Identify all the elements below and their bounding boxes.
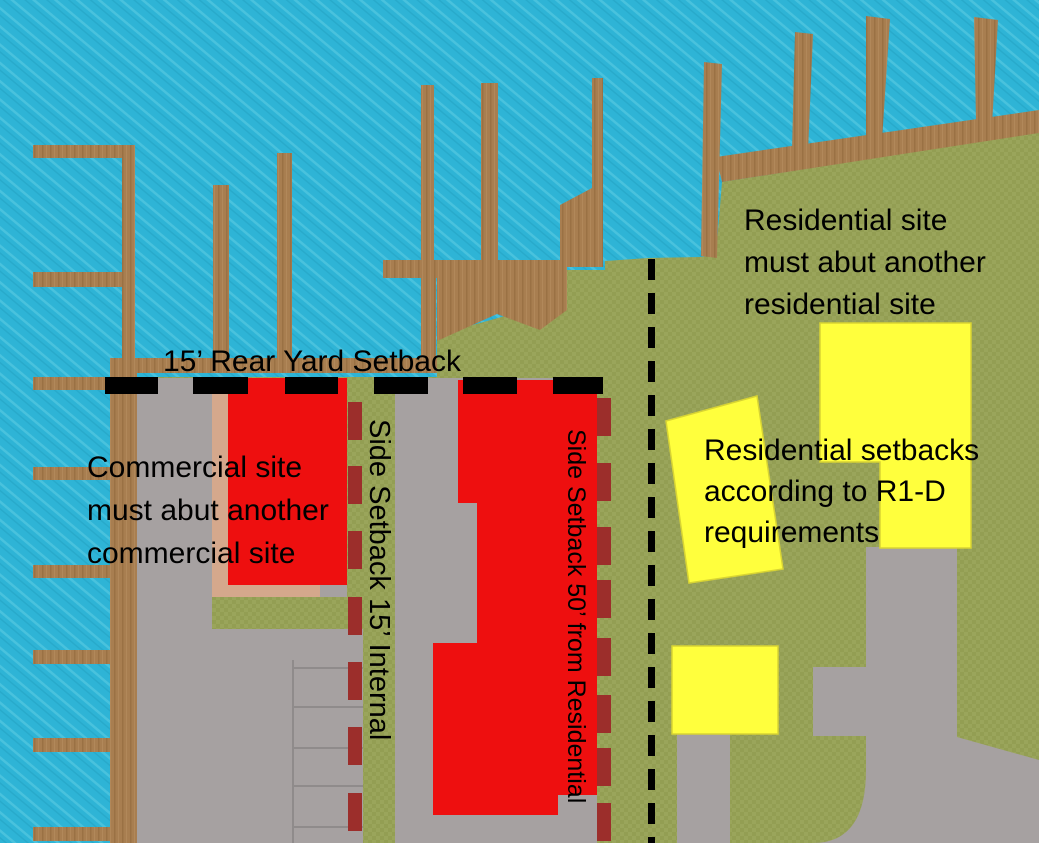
driveway: [677, 734, 730, 843]
commercial-rule-line: Commercial site: [87, 446, 329, 489]
side-setback-internal-label: Side Setback 15’ Internal: [359, 419, 399, 740]
rear-setback-label: 15’ Rear Yard Setback: [163, 341, 461, 382]
setback-dash: [553, 377, 603, 394]
slip-marker: [597, 748, 611, 786]
setback-dash: [105, 377, 158, 394]
commercial-rule-label: Commercial site must abut another commer…: [87, 446, 329, 575]
slip-marker: [597, 527, 611, 565]
dock-finger: [33, 738, 110, 752]
setback-dash: [463, 377, 517, 394]
residential-setbacks-label: Residential setbacks according to R1-D r…: [704, 430, 979, 553]
dock-finger: [33, 145, 135, 158]
dock-finger: [33, 827, 110, 841]
dock-finger: [33, 272, 122, 287]
residential-rule-line: residential site: [744, 284, 986, 326]
slip-marker: [597, 695, 611, 733]
slip-marker: [597, 803, 611, 841]
site-plan-canvas: [0, 0, 1039, 843]
dock-finger: [33, 377, 110, 390]
zoning-site-plan: 15’ Rear Yard Setback Commercial site mu…: [0, 0, 1039, 843]
slip-marker: [597, 398, 611, 436]
dock-pier: [277, 153, 292, 358]
commercial-rule-line: must abut another: [87, 489, 329, 532]
residential-building-3: [672, 646, 778, 734]
dock-spine: [122, 145, 135, 362]
lawn-patch: [212, 597, 360, 629]
residential-rule-line: must abut another: [744, 242, 986, 284]
marina-pier: [481, 83, 498, 278]
residential-rule-label: Residential site must abut another resid…: [744, 200, 986, 326]
residential-setbacks-line: Residential setbacks: [704, 430, 979, 471]
dock-finger: [33, 650, 110, 664]
marina-arm: [383, 260, 567, 278]
side-setback-residential-label: Side Setback 50’ from Residential: [559, 429, 594, 803]
slip-marker: [597, 638, 611, 676]
residential-setbacks-line: according to R1-D: [704, 471, 979, 512]
dock-pier: [213, 185, 229, 358]
boardwalk-vertical: [110, 358, 137, 843]
commercial-rule-line: commercial site: [87, 532, 329, 575]
residential-rule-line: Residential site: [744, 200, 986, 242]
slip-marker: [348, 793, 362, 831]
residential-setbacks-line: requirements: [704, 512, 979, 553]
marina-pier: [421, 85, 434, 278]
slip-marker: [597, 580, 611, 618]
slip-marker: [597, 463, 611, 501]
